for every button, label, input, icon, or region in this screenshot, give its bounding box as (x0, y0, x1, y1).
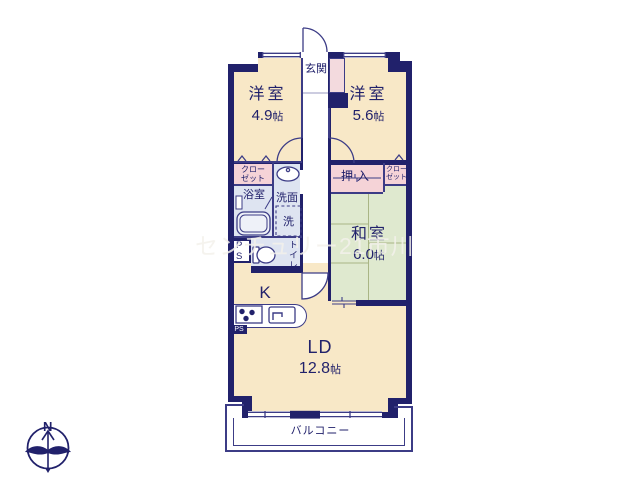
sink-icon (277, 167, 299, 181)
stove-burner (243, 316, 248, 321)
closet-chevron (262, 156, 270, 161)
compass-base (45, 468, 51, 473)
bedroom-left-door-arc (277, 138, 302, 163)
bathroom-label: 浴室 (240, 189, 268, 202)
entrance-door-arc (303, 28, 327, 52)
stove-icon (236, 306, 262, 323)
window-lines (343, 52, 386, 58)
room-name: LD (278, 337, 362, 358)
window-lines (262, 52, 301, 58)
closet-right-label: クロー ゼット (386, 166, 405, 182)
living-dining-label: LD 12.8帖 (278, 337, 362, 378)
room-size: 12.8帖 (278, 360, 362, 378)
watermark: センチュリー21市川 (195, 227, 445, 261)
floor-plan-canvas: PS (0, 0, 640, 480)
room-size: 4.9帖 (234, 107, 301, 124)
bedroom-right-label: 洋室 5.6帖 (331, 86, 406, 125)
stove-burner (239, 309, 244, 314)
bedroom-right-door-arc (329, 138, 354, 163)
window-mullion (290, 411, 320, 419)
room-name: 洋室 (234, 86, 301, 104)
closet-chevron (395, 155, 403, 160)
room-name: 洋室 (331, 86, 406, 104)
kitchen-label: K (252, 283, 278, 303)
genkan-label: 玄関 (300, 63, 332, 76)
hall-ld-door-arc (302, 273, 328, 299)
stove-burner (249, 310, 254, 315)
closet-left-label: クロー ゼット (236, 165, 270, 183)
closet-chevron (238, 156, 246, 161)
compass: N (18, 412, 82, 476)
balcony-label: バルコニー (283, 425, 358, 438)
washroom-label: 洗面 (274, 192, 300, 205)
room-size: 5.6帖 (331, 107, 406, 124)
oshiire-label: 押入 (334, 170, 380, 184)
washitsu-fusuma (332, 297, 356, 308)
bedroom-left-label: 洋室 4.9帖 (234, 86, 301, 125)
